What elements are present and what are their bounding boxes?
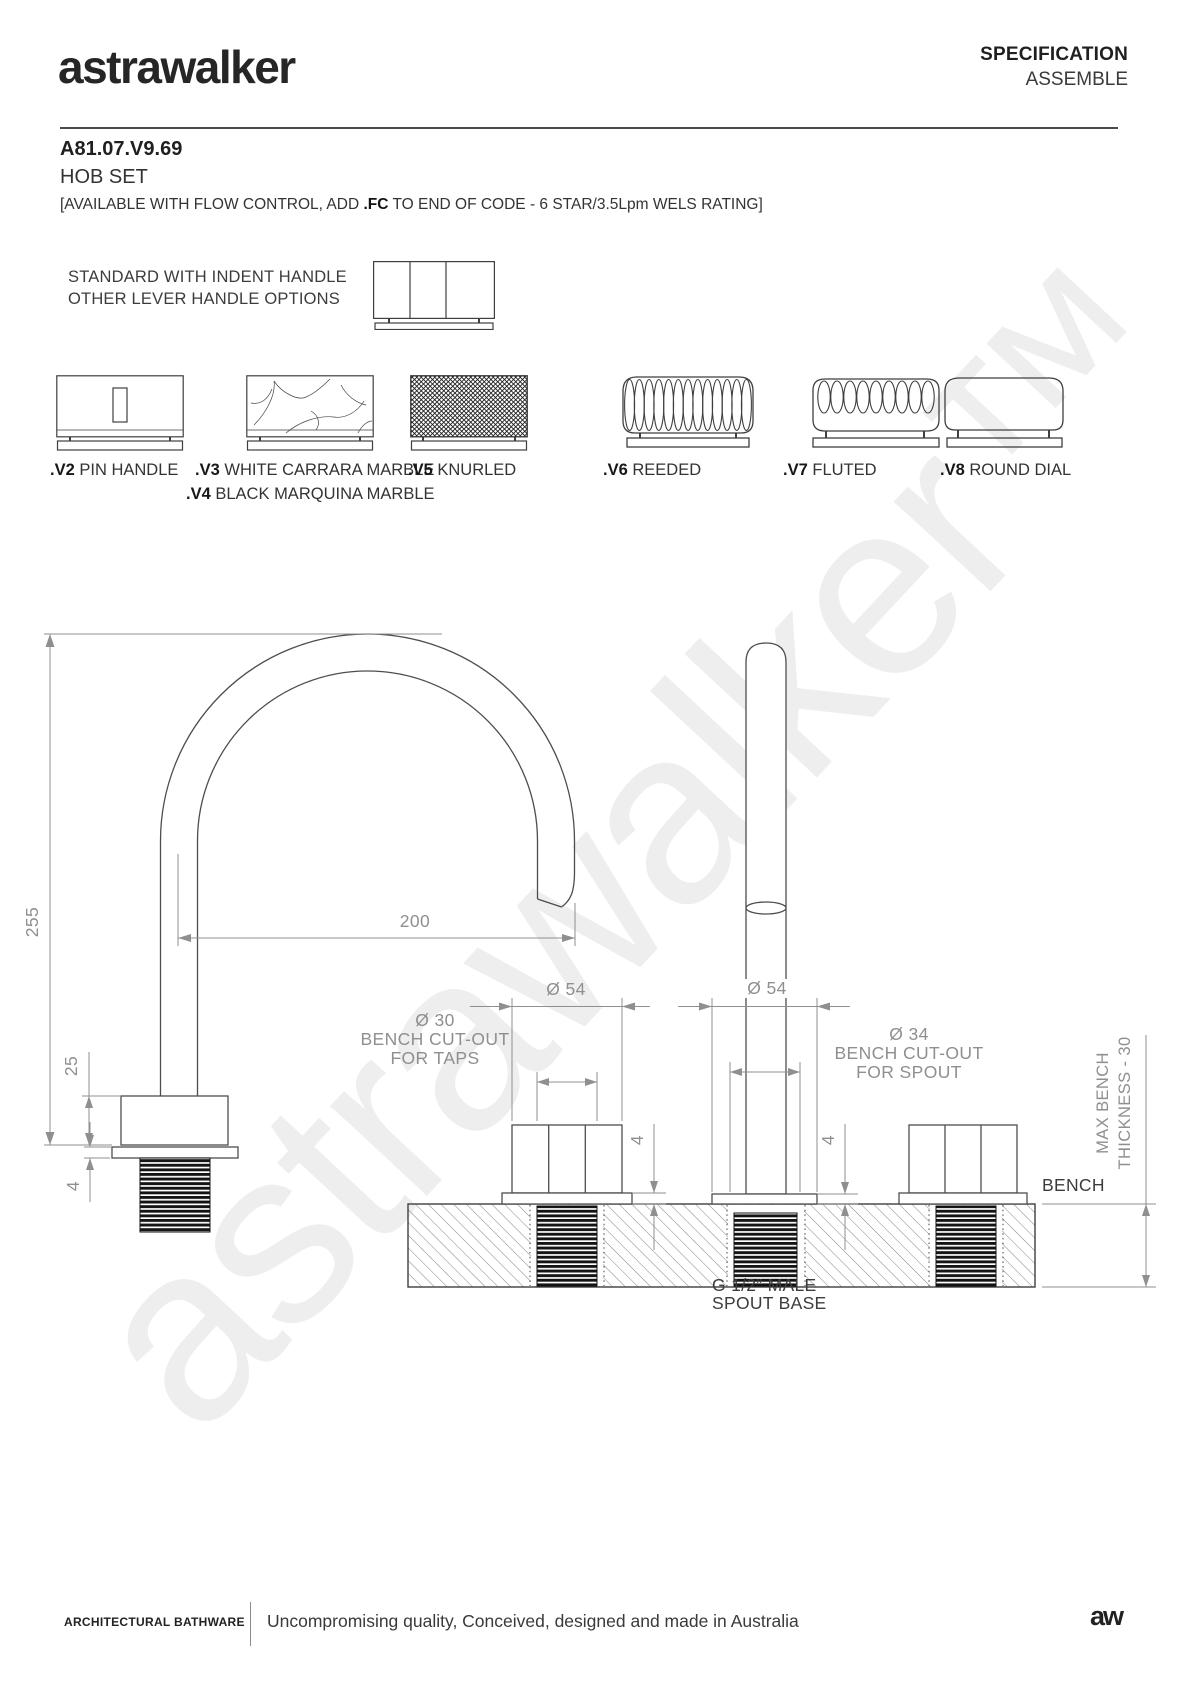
dim-spout-reach: 200 (400, 911, 430, 931)
tap-cutout-dia: Ø 30 (415, 1010, 455, 1030)
dim-spout-flange-front: 4 (818, 1135, 838, 1145)
header-rule (60, 127, 1118, 129)
hob-set-front-view (502, 643, 1027, 1204)
max-bench-line1: MAX BENCH (1094, 1052, 1112, 1154)
note-suffix: TO END OF CODE - 6 STAR/3.5Lpm WELS RATI… (388, 196, 762, 213)
oval-flutes (818, 381, 934, 413)
label-v4: .V4 BLACK MARQUINA MARBLE (186, 485, 435, 504)
page-content: astrawalker SPECIFICATION ASSEMBLE A81.0… (0, 0, 1190, 1683)
doc-subtype: ASSEMBLE (980, 69, 1128, 91)
spout-cutout-line3: FOR SPOUT (856, 1062, 962, 1082)
label-v3: .V3 WHITE CARRARA MARBLE (195, 461, 434, 480)
spout-base-line1: G 1/2” MALE (712, 1275, 816, 1295)
handle-option-v5-drawing (410, 375, 528, 451)
label-v3-code: .V3 (195, 461, 220, 479)
spout-cutout-dia: Ø 34 (889, 1024, 929, 1044)
spout-flange (712, 1194, 817, 1204)
label-v6-text: REEDED (632, 461, 701, 479)
bench-label: BENCH (1042, 1175, 1105, 1195)
note-code-suffix: .FC (363, 196, 388, 213)
label-v7-code: .V7 (783, 461, 808, 479)
brand-logo: astrawalker (58, 40, 295, 94)
spout-aerator (746, 902, 786, 914)
label-v2-text: PIN HANDLE (79, 461, 178, 479)
tap-thread-right (936, 1206, 996, 1286)
max-bench-line2: THICKNESS - 30 (1116, 1036, 1134, 1169)
label-v5: .V5 KNURLED (408, 461, 516, 480)
indent-handle-drawing (373, 261, 495, 330)
label-v6: .V6 REEDED (603, 461, 701, 480)
dim-tap-body-height: 25 (61, 1056, 81, 1076)
dim-spout-height: 255 (22, 907, 42, 937)
footer-tagline: Uncompromising quality, Conceived, desig… (267, 1611, 799, 1632)
handle-option-v3-drawing (246, 375, 374, 451)
spout-cutout-line2: BENCH CUT-OUT (834, 1043, 983, 1063)
handle-option-v6-drawing (620, 374, 756, 450)
label-v4-text: BLACK MARQUINA MARBLE (215, 485, 434, 503)
dim-spout-flange-dia: Ø 54 (747, 978, 787, 998)
dim-tap-dia: Ø 54 (546, 979, 586, 999)
label-v8-text: ROUND DIAL (969, 461, 1071, 479)
note-prefix: [AVAILABLE WITH FLOW CONTROL, ADD (60, 196, 363, 213)
tap-thread-left (537, 1206, 597, 1286)
footer-divider (250, 1602, 251, 1646)
dim-tap-flange-height: 4 (63, 1181, 83, 1191)
product-code: A81.07.V9.69 (60, 138, 182, 161)
handle-option-v2-drawing (56, 375, 184, 451)
product-availability-note: [AVAILABLE WITH FLOW CONTROL, ADD .FC TO… (60, 196, 763, 214)
tap-body-right (909, 1125, 1017, 1193)
handle-intro: STANDARD WITH INDENT HANDLE OTHER LEVER … (68, 266, 347, 310)
label-v5-text: KNURLED (437, 461, 516, 479)
tap-flange-left (502, 1193, 632, 1204)
label-v7-text: FLUTED (812, 461, 876, 479)
dim-tap-flange-front: 4 (627, 1135, 647, 1145)
tap-cutout-line2: BENCH CUT-OUT (360, 1029, 509, 1049)
doc-type: SPECIFICATION (980, 44, 1128, 66)
tap-flange-right (899, 1193, 1027, 1204)
spout-tube (746, 643, 786, 1194)
spout-base-line2: SPOUT BASE (712, 1293, 827, 1313)
label-v4-code: .V4 (186, 485, 211, 503)
tap-cutout-line3: FOR TAPS (390, 1048, 479, 1068)
label-v3-text: WHITE CARRARA MARBLE (224, 461, 434, 479)
label-v2: .V2 PIN HANDLE (50, 461, 178, 480)
handle-intro-line2: OTHER LEVER HANDLE OPTIONS (68, 288, 347, 310)
handle-option-v8-drawing (943, 374, 1067, 449)
specification-page: astrawalker™ astrawalker SPECIFICATION A… (0, 0, 1190, 1683)
label-v5-code: .V5 (408, 461, 433, 479)
label-v2-code: .V2 (50, 461, 75, 479)
label-v8: .V8 ROUND DIAL (940, 461, 1071, 480)
footer-aw-logo: aw (1090, 1601, 1122, 1632)
technical-drawing: 255 25 4 200 Ø 54 Ø 54 Ø 30 BENCH CUT-OU… (0, 580, 1190, 1340)
handle-intro-line1: STANDARD WITH INDENT HANDLE (68, 266, 347, 288)
product-name: HOB SET (60, 166, 148, 189)
reed-flutes (625, 380, 752, 431)
doc-type-block: SPECIFICATION ASSEMBLE (980, 44, 1128, 91)
gooseneck-spout-view (112, 634, 575, 1232)
label-v6-code: .V6 (603, 461, 628, 479)
tap-body-left (512, 1125, 622, 1193)
handle-option-v7-drawing (810, 375, 942, 449)
label-v8-code: .V8 (940, 461, 965, 479)
label-v7: .V7 FLUTED (783, 461, 877, 480)
footer-brand: ARCHITECTURAL BATHWARE (64, 1615, 245, 1629)
